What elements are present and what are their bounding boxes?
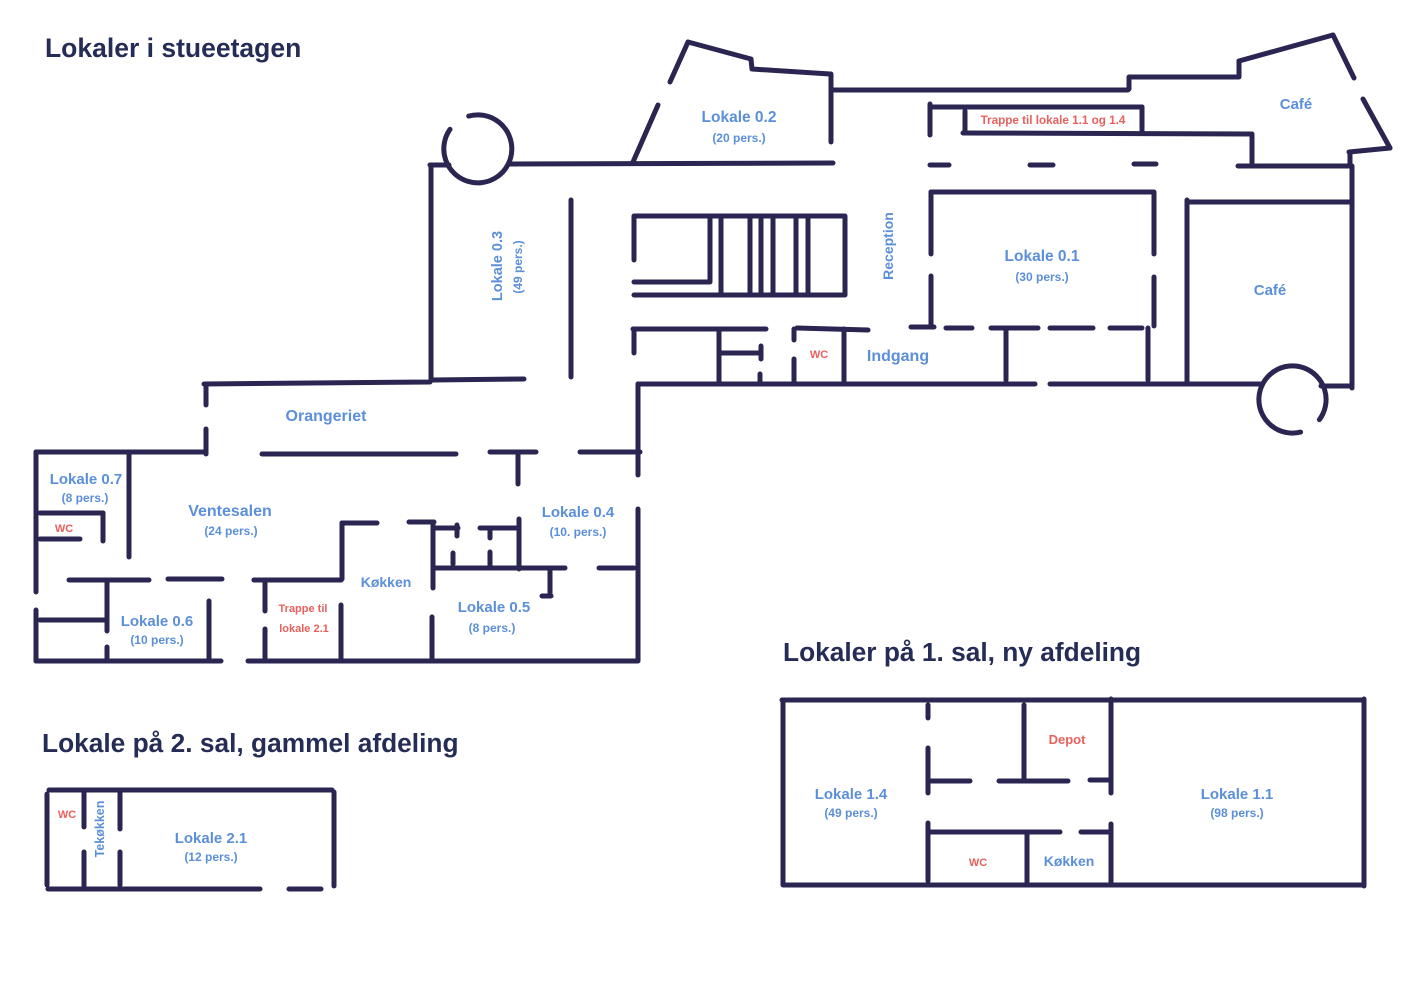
svg-text:Tekøkken: Tekøkken [93, 801, 107, 858]
svg-text:(24 pers.): (24 pers.) [204, 524, 257, 538]
svg-text:(20 pers.): (20 pers.) [712, 131, 765, 145]
svg-text:(12 pers.): (12 pers.) [184, 850, 237, 864]
svg-text:WC: WC [810, 349, 828, 361]
svg-text:Lokale 0.4: Lokale 0.4 [542, 504, 615, 521]
svg-text:Reception: Reception [880, 212, 896, 280]
svg-text:(30 pers.): (30 pers.) [1015, 270, 1068, 284]
svg-text:WC: WC [55, 523, 73, 535]
svg-text:Lokale 0.5: Lokale 0.5 [458, 599, 531, 616]
svg-text:Trappe til: Trappe til [279, 603, 328, 615]
svg-text:(8 pers.): (8 pers.) [469, 621, 516, 635]
svg-text:(49 pers.): (49 pers.) [824, 806, 877, 820]
svg-text:(10 pers.): (10 pers.) [130, 633, 183, 647]
svg-text:Indgang: Indgang [867, 348, 929, 365]
svg-text:Lokale 0.7: Lokale 0.7 [50, 471, 123, 488]
svg-text:(10. pers.): (10. pers.) [550, 525, 607, 539]
svg-text:Café: Café [1254, 282, 1287, 299]
svg-text:Lokale 0.3: Lokale 0.3 [490, 231, 506, 301]
svg-text:Lokale 0.1: Lokale 0.1 [1005, 248, 1080, 265]
svg-text:Depot: Depot [1049, 732, 1087, 747]
svg-text:Køkken: Køkken [1044, 853, 1095, 869]
svg-text:Trappe til lokale 1.1 og 1.4: Trappe til lokale 1.1 og 1.4 [981, 114, 1126, 127]
svg-text:Orangeriet: Orangeriet [286, 408, 368, 425]
svg-text:WC: WC [969, 857, 987, 869]
svg-text:Lokale på 2. sal, gammel afdel: Lokale på 2. sal, gammel afdeling [42, 728, 459, 758]
svg-text:Lokale 2.1: Lokale 2.1 [175, 830, 248, 847]
svg-text:Køkken: Køkken [361, 574, 412, 590]
svg-text:Lokale 0.2: Lokale 0.2 [702, 109, 777, 126]
svg-text:(98 pers.): (98 pers.) [1210, 806, 1263, 820]
svg-text:Café: Café [1280, 96, 1313, 113]
svg-text:Lokaler på 1. sal, ny afdeling: Lokaler på 1. sal, ny afdeling [783, 637, 1141, 667]
svg-text:Lokaler i stueetagen: Lokaler i stueetagen [45, 33, 301, 63]
svg-text:Lokale 1.1: Lokale 1.1 [1201, 786, 1274, 803]
svg-text:Lokale 1.4: Lokale 1.4 [815, 786, 888, 803]
svg-text:Ventesalen: Ventesalen [188, 503, 272, 520]
svg-text:lokale 2.1: lokale 2.1 [279, 623, 329, 635]
svg-text:WC: WC [58, 809, 76, 821]
svg-text:(49 pers.): (49 pers.) [511, 240, 525, 293]
svg-text:(8 pers.): (8 pers.) [62, 491, 109, 505]
svg-text:Lokale 0.6: Lokale 0.6 [121, 613, 194, 630]
